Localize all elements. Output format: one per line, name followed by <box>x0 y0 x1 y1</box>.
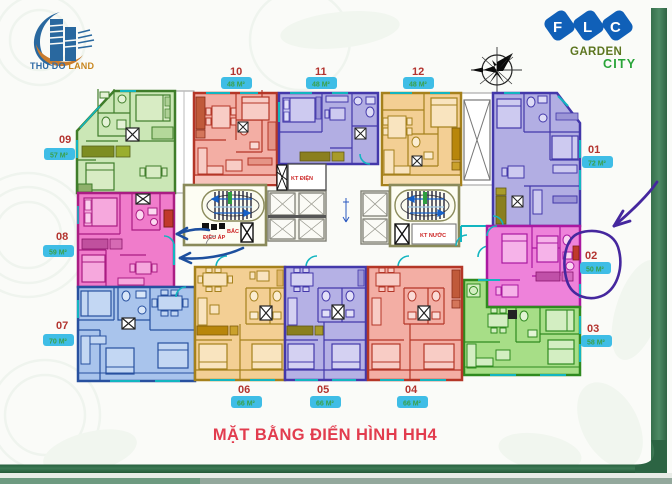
svg-text:BẮC: BẮC <box>227 227 239 235</box>
svg-text:48 M²: 48 M² <box>312 82 331 89</box>
svg-text:12: 12 <box>412 66 424 78</box>
svg-text:11: 11 <box>315 66 327 78</box>
svg-text:03: 03 <box>587 323 599 335</box>
svg-text:L: L <box>583 19 592 36</box>
svg-text:THU DO LAND: THU DO LAND <box>30 61 95 71</box>
svg-text:58 M²: 58 M² <box>587 340 606 347</box>
svg-text:08: 08 <box>56 231 68 243</box>
svg-text:48 M²: 48 M² <box>409 82 428 89</box>
svg-text:F: F <box>553 19 562 36</box>
svg-text:07: 07 <box>56 320 68 332</box>
svg-text:57 M²: 57 M² <box>50 153 69 160</box>
svg-text:C: C <box>610 19 621 36</box>
svg-text:KT ĐIỆN: KT ĐIỆN <box>291 174 313 182</box>
svg-text:06: 06 <box>238 384 250 396</box>
svg-text:70 M²: 70 M² <box>49 339 68 346</box>
svg-text:MẶT BẰNG ĐIỂN HÌNH HH4: MẶT BẰNG ĐIỂN HÌNH HH4 <box>213 425 438 444</box>
svg-text:05: 05 <box>317 384 329 396</box>
svg-text:KT NƯỚC: KT NƯỚC <box>420 231 446 239</box>
svg-text:66 M²: 66 M² <box>316 401 335 408</box>
svg-text:66 M²: 66 M² <box>237 401 256 408</box>
svg-text:59 M²: 59 M² <box>49 250 68 257</box>
svg-text:CITY: CITY <box>603 57 636 71</box>
svg-text:10: 10 <box>230 66 242 78</box>
svg-text:72 M²: 72 M² <box>588 161 607 168</box>
svg-text:09: 09 <box>59 134 71 146</box>
svg-text:ĐIỀU ÁP: ĐIỀU ÁP <box>203 234 226 241</box>
svg-text:02: 02 <box>585 250 597 262</box>
svg-text:01: 01 <box>588 144 600 156</box>
svg-text:48 M²: 48 M² <box>227 82 246 89</box>
svg-text:04: 04 <box>405 384 418 396</box>
svg-text:50 M²: 50 M² <box>586 267 605 274</box>
svg-text:66 M²: 66 M² <box>403 401 422 408</box>
